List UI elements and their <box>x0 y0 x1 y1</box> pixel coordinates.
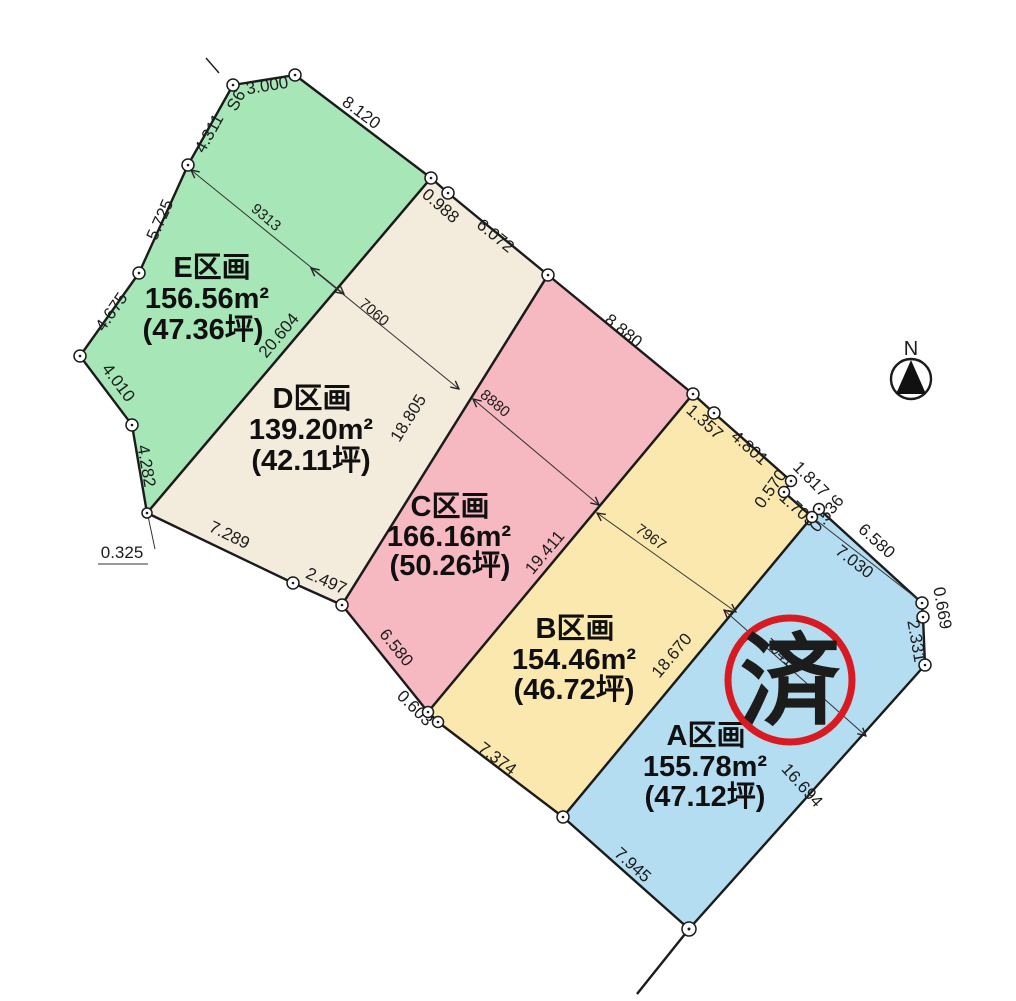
parcel-d-name: D区画 <box>273 383 352 415</box>
leader-0325 <box>148 516 155 549</box>
parcel-b-name: B区画 <box>536 613 615 645</box>
parcel-d-tsubo: (42.11坪) <box>251 444 370 477</box>
parcel-a-area: 155.78m² <box>643 751 767 783</box>
parcel-d-area: 139.20m² <box>249 414 373 446</box>
parcel-e-tsubo: (47.36坪) <box>143 313 264 346</box>
parcel-c-area: 166.16m² <box>387 521 511 553</box>
parcel-c-tsubo: (50.26坪) <box>390 549 511 582</box>
map-svg: 9313 7060 8880 7967 7941 4.311 S6 3.000 … <box>0 0 1016 1001</box>
parcel-a-tsubo: (47.12坪) <box>645 780 766 813</box>
dim-label-0325: 0.325 <box>101 543 144 562</box>
parcel-b-tsubo: (46.72坪) <box>514 673 635 706</box>
top-boundary-tick <box>206 58 219 73</box>
parcel-c-name: C区画 <box>411 491 490 523</box>
dim-label-0669: 0.669 <box>929 585 955 630</box>
stamp-character: 済 <box>740 626 841 738</box>
north-compass: N <box>891 338 931 399</box>
north-label: N <box>904 338 918 360</box>
parcel-e-area: 156.56m² <box>145 283 269 315</box>
parcel-e-name: E区画 <box>173 252 250 284</box>
north-arrow-icon <box>896 360 926 394</box>
road-extension-line <box>637 929 689 994</box>
parcel-a-name: A区画 <box>667 720 746 752</box>
parcel-b-area: 154.46m² <box>512 644 636 676</box>
sold-stamp: 済 <box>728 618 852 742</box>
plot-subdivision-map: 9313 7060 8880 7967 7941 4.311 S6 3.000 … <box>0 0 1016 1001</box>
